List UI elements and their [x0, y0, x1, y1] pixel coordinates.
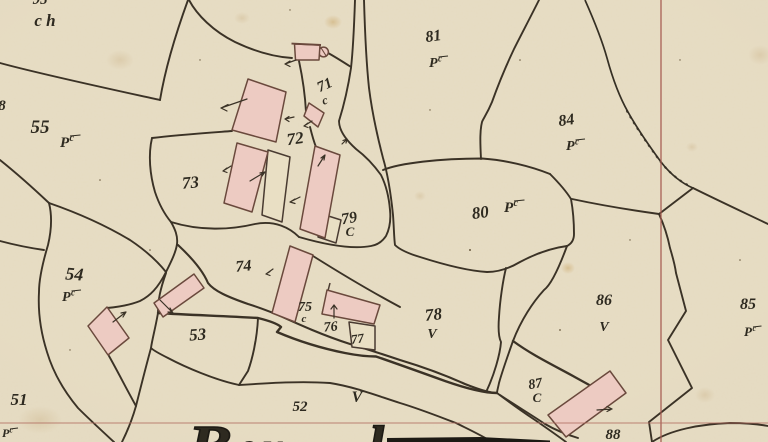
svg-text:l: l: [368, 414, 385, 442]
svg-text:c: c: [10, 426, 14, 435]
svg-text:76: 76: [323, 319, 338, 335]
svg-text:B: B: [187, 415, 232, 442]
svg-text:52: 52: [293, 399, 309, 415]
svg-text:c: c: [70, 133, 75, 144]
svg-text:53: 53: [188, 324, 207, 344]
svg-text:P: P: [566, 139, 575, 154]
svg-text:V: V: [352, 389, 364, 406]
svg-text:c: c: [575, 137, 579, 147]
svg-text:81: 81: [424, 27, 442, 46]
svg-text:P: P: [429, 56, 438, 71]
svg-text:c: c: [71, 288, 75, 298]
svg-text:P: P: [60, 135, 70, 151]
svg-text:80: 80: [470, 202, 490, 223]
svg-text:C: C: [533, 390, 542, 405]
svg-text:77: 77: [350, 330, 365, 347]
svg-text:55: 55: [31, 117, 51, 138]
svg-text:74: 74: [235, 257, 252, 275]
svg-text:84: 84: [557, 111, 575, 130]
svg-text:ou: ou: [238, 424, 288, 442]
svg-text:c: c: [514, 198, 519, 209]
svg-text:95: 95: [33, 0, 49, 8]
svg-text:P: P: [504, 200, 514, 216]
svg-text:C: C: [346, 224, 355, 239]
svg-text:54: 54: [65, 263, 84, 284]
svg-text:86: 86: [596, 292, 612, 309]
svg-text:51: 51: [11, 390, 28, 409]
svg-text:P: P: [62, 290, 71, 305]
svg-text:c: c: [438, 54, 442, 64]
svg-text:72: 72: [285, 128, 305, 149]
svg-text:78: 78: [424, 304, 443, 325]
svg-text:c: c: [302, 313, 307, 325]
svg-text:8: 8: [0, 98, 6, 114]
svg-text:c: c: [753, 324, 757, 333]
svg-text:73: 73: [181, 172, 200, 192]
svg-text:c h: c h: [34, 11, 55, 30]
svg-text:88: 88: [606, 427, 622, 442]
svg-text:85: 85: [740, 296, 756, 313]
